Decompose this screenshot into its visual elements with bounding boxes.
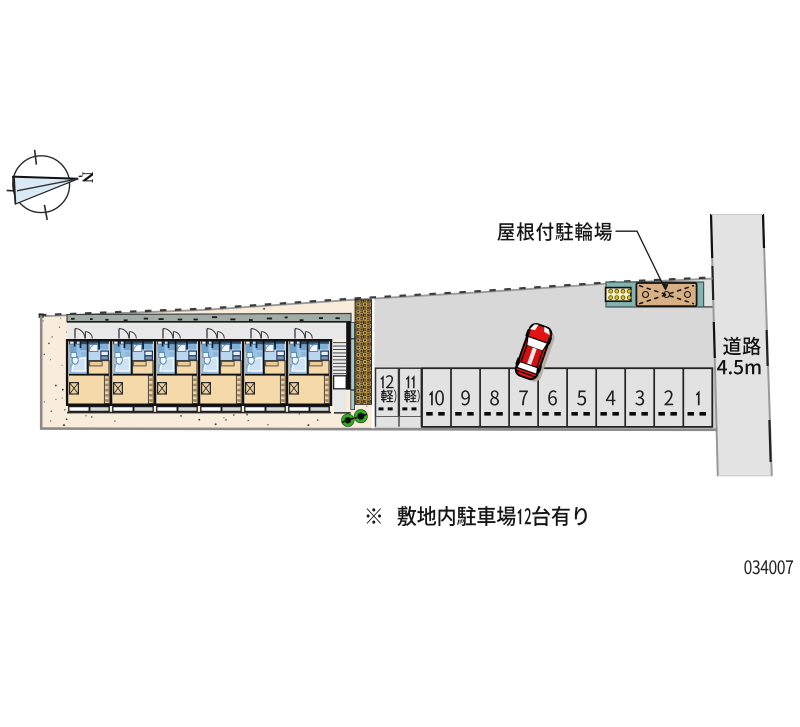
svg-text:N: N	[78, 172, 95, 183]
